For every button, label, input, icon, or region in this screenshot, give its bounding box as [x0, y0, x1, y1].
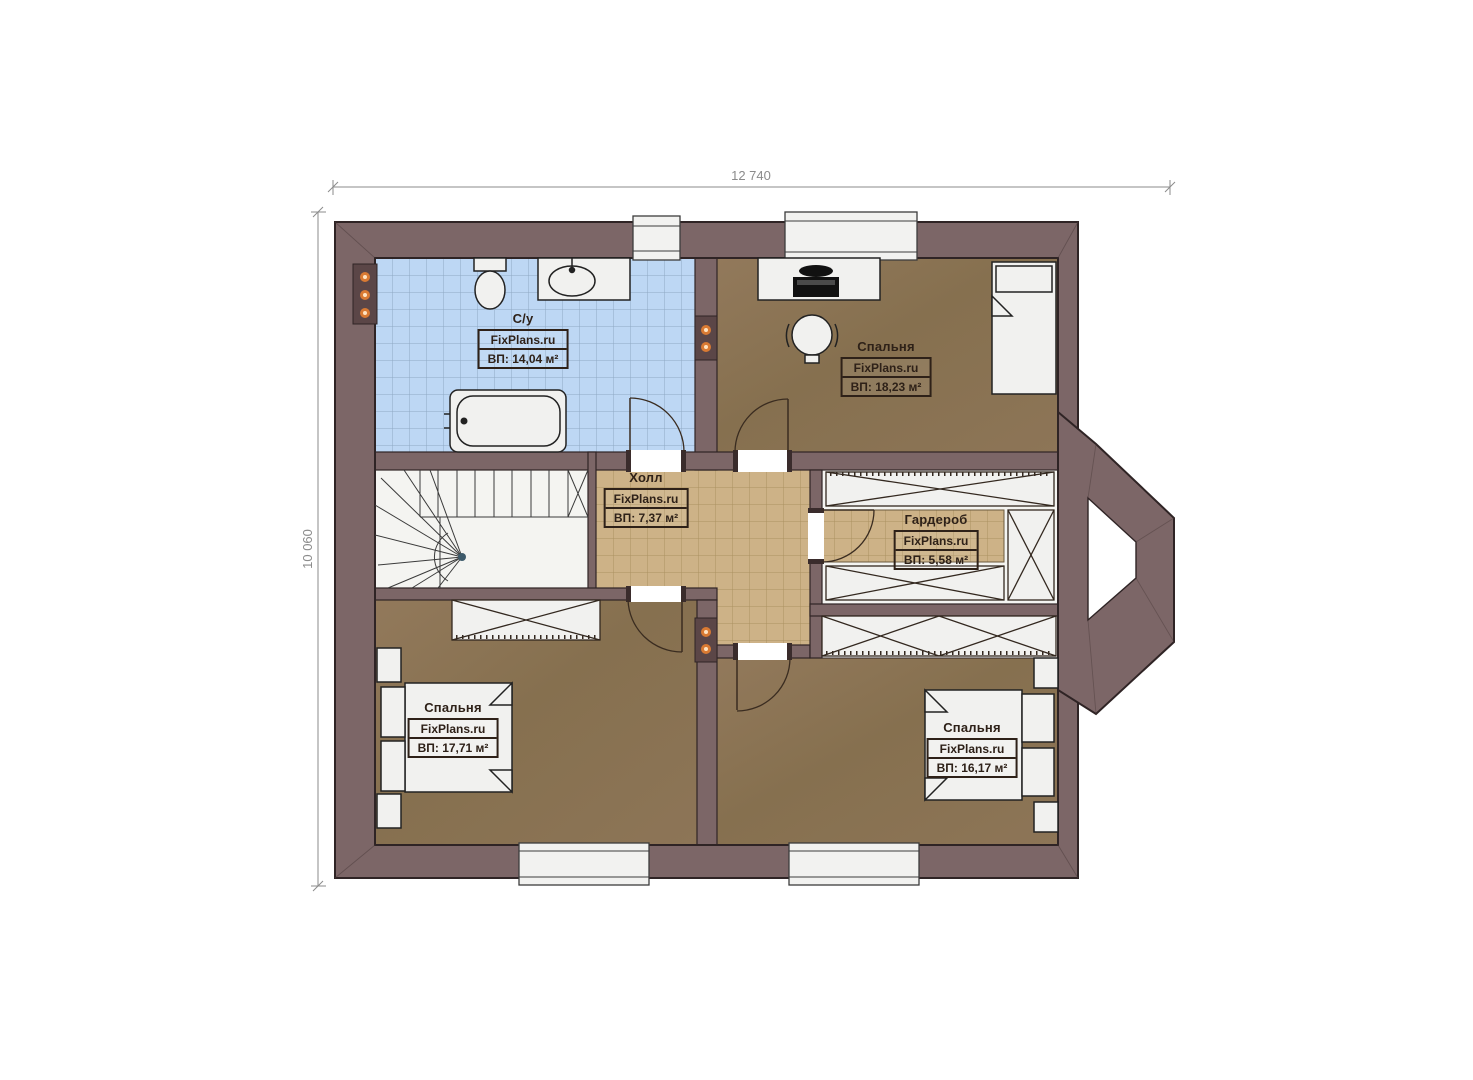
nightstand-icon: [1034, 802, 1058, 832]
room-label-bedroom-bottom-left: Спальня FixPlans.ru ВП: 17,71 м²: [408, 700, 499, 758]
room-info-box: FixPlans.ru ВП: 17,71 м²: [408, 718, 499, 758]
closet-bedroom-bottom-right: [822, 616, 1056, 656]
bed-single-icon: [992, 262, 1056, 394]
room-label-wardrobe: Гардероб FixPlans.ru ВП: 5,58 м²: [894, 512, 979, 570]
room-info-box: FixPlans.ru ВП: 16,17 м²: [927, 738, 1018, 778]
sconce-panel: [695, 316, 717, 360]
floor-plan-canvas: 12 740 10 060 С/у FixPlans.ru ВП: 14,04 …: [0, 0, 1473, 1080]
wall-hall-bedroom-left: [682, 588, 717, 600]
closet-bedroom-bottom-left: [452, 600, 600, 640]
dimension-height-label: 10 060: [300, 529, 315, 569]
wall-stairs-bedroom-left: [375, 588, 628, 600]
wall-middle-horizontal: [375, 452, 1058, 470]
room-name: С/у: [513, 311, 534, 326]
room-area: ВП: 18,23 м²: [843, 378, 930, 395]
room-name: Спальня: [424, 700, 482, 715]
stair-pivot-marker: [458, 553, 466, 561]
nightstand-icon: [377, 794, 401, 828]
dimension-vertical: 10 060: [300, 207, 326, 891]
floor-plan-drawing: 12 740 10 060: [0, 0, 1473, 1080]
nightstand-icon: [1034, 658, 1058, 688]
room-area: ВП: 7,37 м²: [606, 509, 687, 526]
room-brand: FixPlans.ru: [896, 532, 977, 551]
room-name: Спальня: [943, 720, 1001, 735]
dimension-horizontal: 12 740: [328, 168, 1175, 195]
room-label-bedroom-top-right: Спальня FixPlans.ru ВП: 18,23 м²: [841, 339, 932, 397]
toilet-icon: [474, 258, 506, 309]
room-brand: FixPlans.ru: [929, 740, 1016, 759]
room-area: ВП: 14,04 м²: [480, 350, 567, 367]
closet-wardrobe-right: [1008, 510, 1054, 600]
room-label-hall: Холл FixPlans.ru ВП: 7,37 м²: [604, 470, 689, 528]
wall-bathroom-bedroom: [695, 258, 717, 470]
room-brand: FixPlans.ru: [843, 359, 930, 378]
closet-wardrobe-top: [826, 472, 1054, 506]
desk-icon: [758, 258, 880, 300]
sink-icon: [538, 258, 630, 300]
bay-window: [1058, 412, 1174, 714]
window-bottom-left: [519, 843, 649, 885]
stairwell-floor: [375, 470, 588, 588]
room-label-bathroom: С/у FixPlans.ru ВП: 14,04 м²: [478, 311, 569, 369]
room-info-box: FixPlans.ru ВП: 18,23 м²: [841, 357, 932, 397]
room-area: ВП: 16,17 м²: [929, 759, 1016, 776]
room-info-box: FixPlans.ru ВП: 7,37 м²: [604, 488, 689, 528]
closet-wardrobe-bottom: [826, 566, 1004, 600]
window-bottom-right: [789, 843, 919, 885]
room-area: ВП: 5,58 м²: [896, 551, 977, 568]
room-info-box: FixPlans.ru ВП: 14,04 м²: [478, 329, 569, 369]
bathtub-icon: [444, 390, 566, 452]
sconce-panel: [695, 618, 717, 662]
nightstand-icon: [377, 648, 401, 682]
window-top-wide: [785, 212, 917, 260]
dimension-width-label: 12 740: [731, 168, 771, 183]
wall-wardrobe-bedroom-right: [810, 604, 1058, 616]
wall-stairs-hall: [588, 452, 596, 596]
room-brand: FixPlans.ru: [480, 331, 567, 350]
room-name: Гардероб: [904, 512, 967, 527]
room-brand: FixPlans.ru: [606, 490, 687, 509]
window-top-small: [633, 216, 680, 260]
room-name: Спальня: [857, 339, 915, 354]
room-info-box: FixPlans.ru ВП: 5,58 м²: [894, 530, 979, 570]
sconce-panel: [353, 264, 377, 324]
room-name: Холл: [629, 470, 662, 485]
room-brand: FixPlans.ru: [410, 720, 497, 739]
room-area: ВП: 17,71 м²: [410, 739, 497, 756]
room-label-bedroom-bottom-right: Спальня FixPlans.ru ВП: 16,17 м²: [927, 720, 1018, 778]
